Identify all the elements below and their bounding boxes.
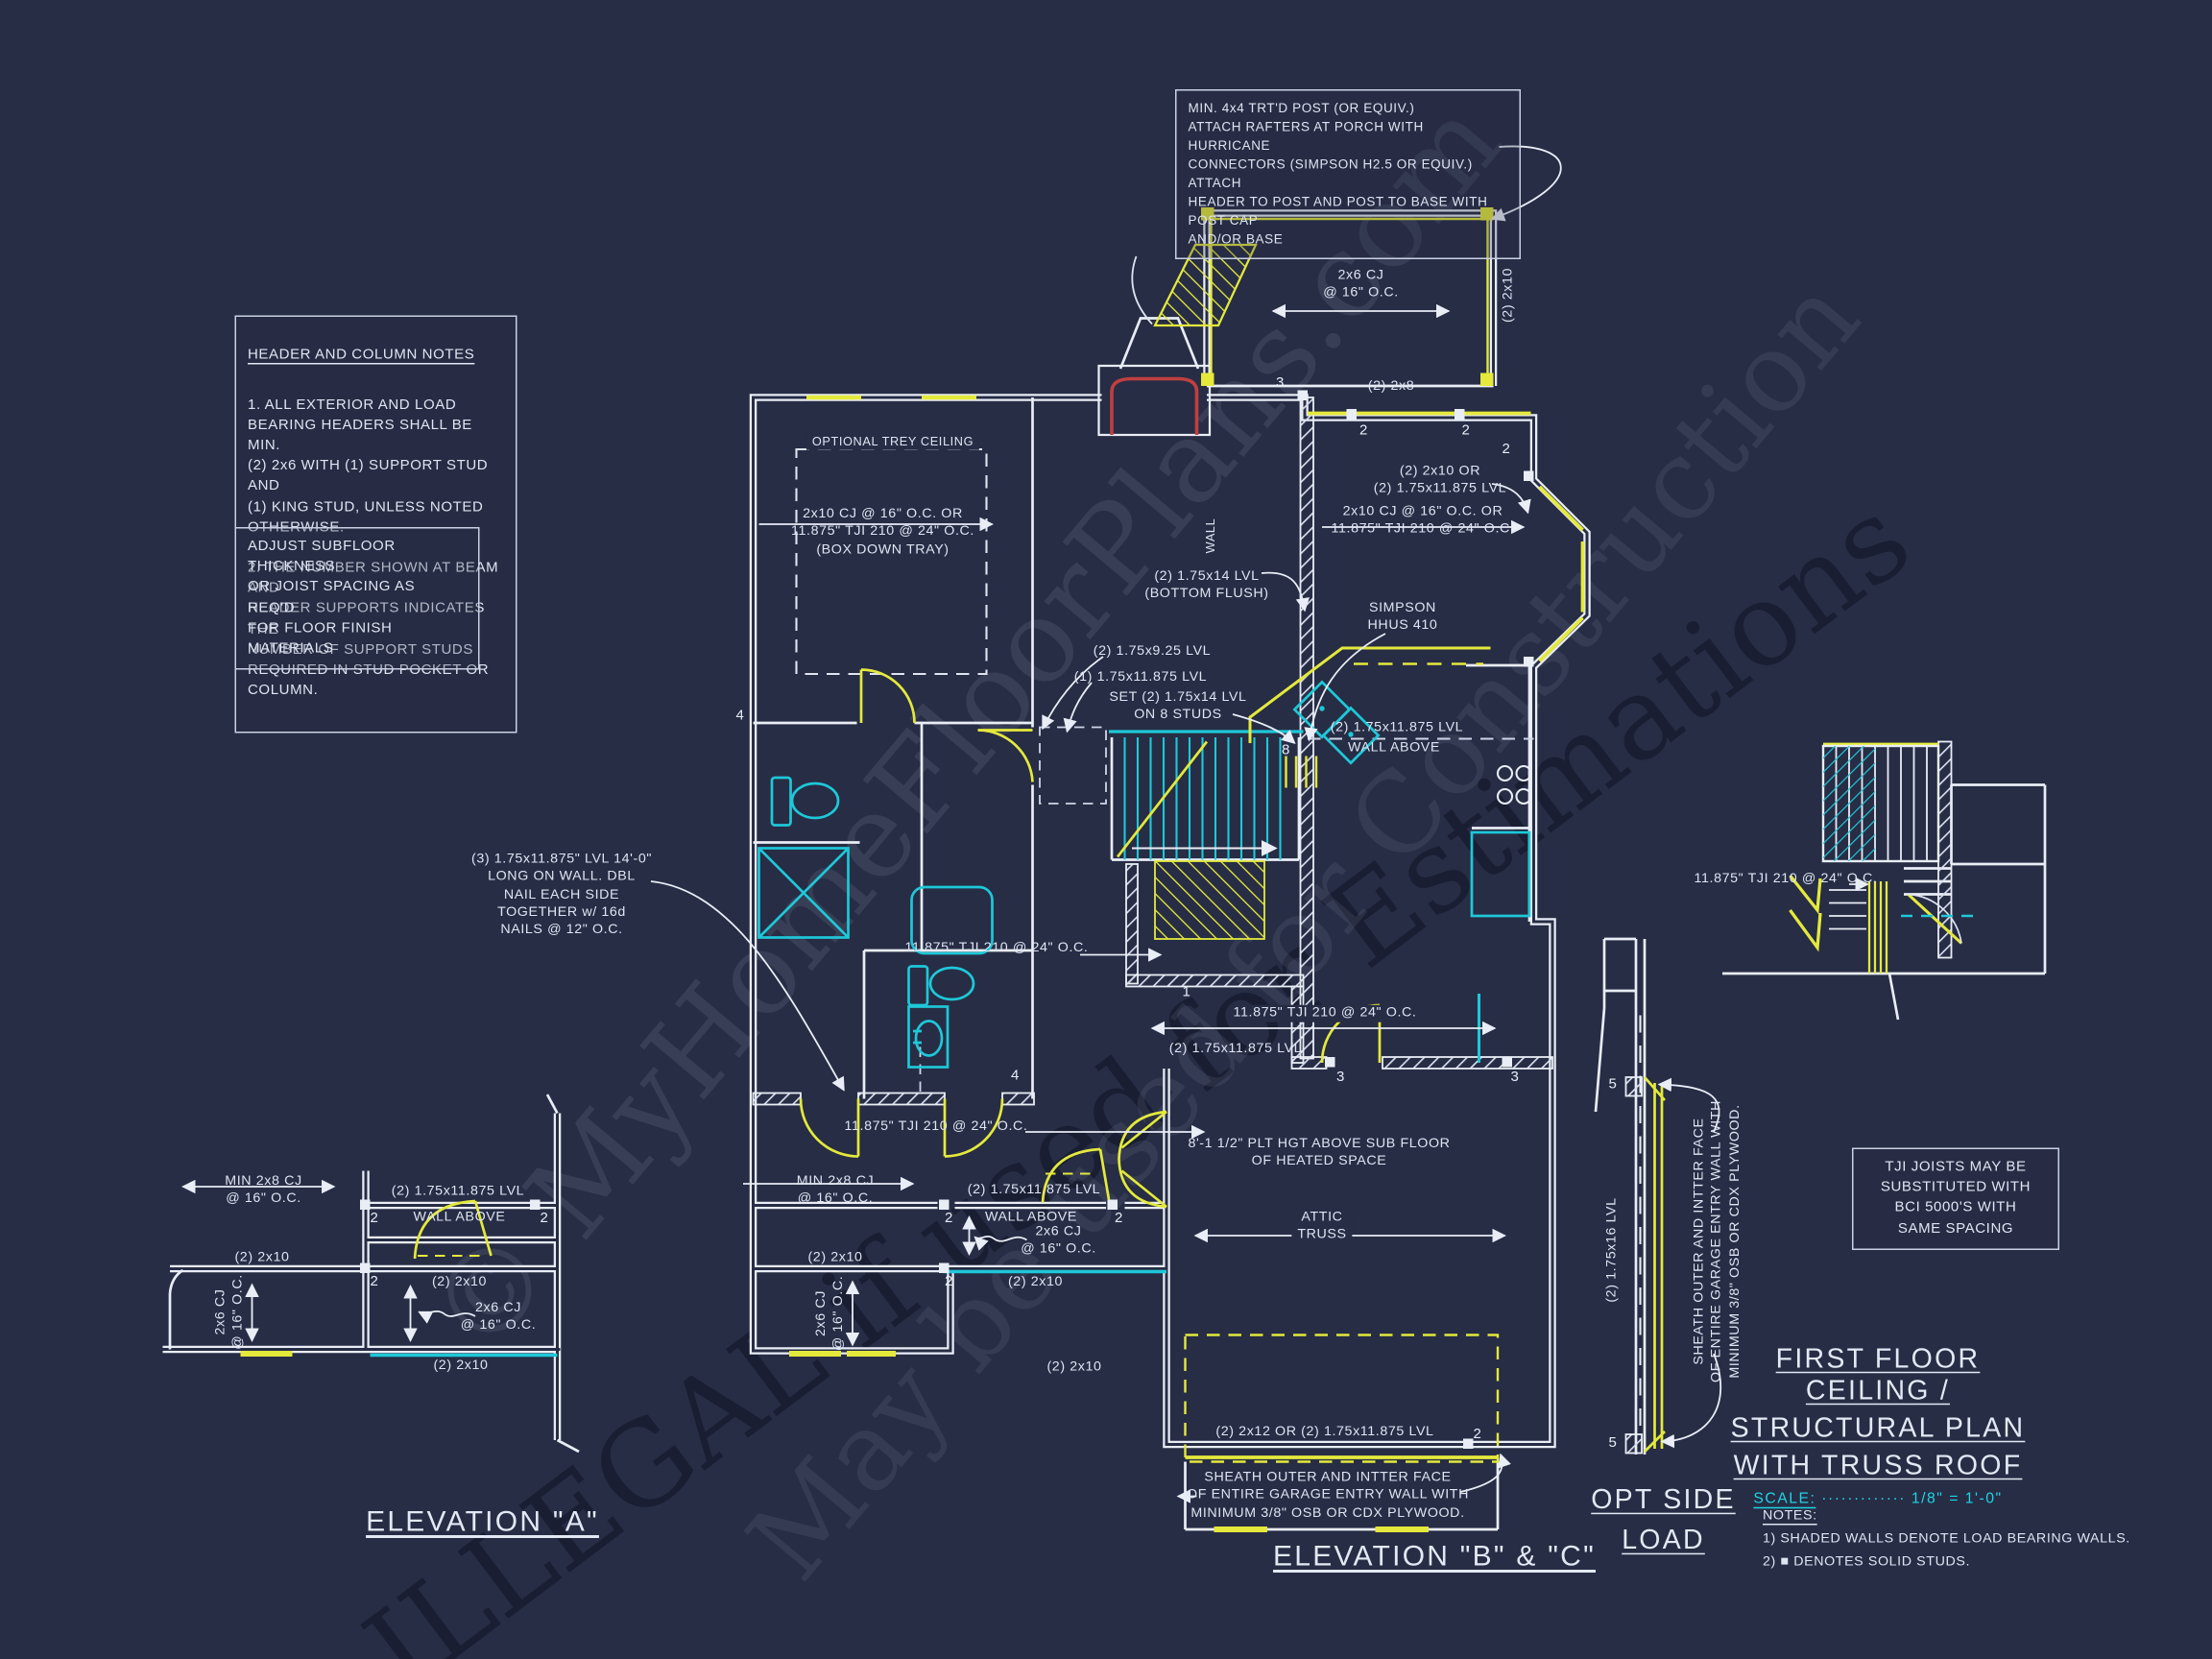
attic-truss-label: ATTIC TRUSS [1291,1209,1352,1244]
lvl14-flush-label: (2) 1.75x14 LVL (BOTTOM FLUSH) [1144,568,1268,604]
header-notes-title: HEADER AND COLUMN NOTES [248,346,504,366]
b2x10-a1: (2) 2x10 [234,1250,289,1268]
b2x10-a2: (2) 2x10 [432,1274,487,1292]
stud-count: 4 [1011,1067,1020,1086]
garage-header-label: (2) 2x12 OR (2) 1.75x11.875 LVL [1215,1424,1433,1442]
stud-count: 2 [371,1209,379,1228]
min2x8-bc-label: MIN 2x8 CJ @ 16" O.C. [797,1173,874,1209]
sheet-note-1: 1) SHADED WALLS DENOTE LOAD BEARING WALL… [1763,1528,2130,1551]
stud-count: 4 [736,707,745,726]
b2x10-bc-bottom: (2) 2x10 [1046,1359,1101,1378]
tji-label-a: 11.875" TJI 210 @ 24" O.C. [905,940,1089,958]
stud-count: 2 [945,1209,953,1228]
stud-count: 8 [1282,741,1290,760]
title-block: FIRST FLOOR CEILING / STRUCTURAL PLAN WI… [1711,1344,2045,1507]
stud-count: 2 [1503,440,1511,459]
tji-note-text: TJI JOISTS MAY BE SUBSTITUTED WITH BCI 5… [1881,1160,2031,1237]
stud-count: 2 [945,1272,953,1291]
stud-count: 3 [1336,1068,1345,1087]
lvl-wall-note: (3) 1.75x11.875" LVL 14'-0" LONG ON WALL… [471,852,652,941]
right-lvl-label: (2) 2x10 OR (2) 1.75x11.875 LVL [1374,463,1506,498]
tji-label-b: 11.875" TJI 210 @ 24" O.C. [845,1118,1028,1137]
header-column-notes-box: HEADER AND COLUMN NOTES 1. ALL EXTERIOR … [235,316,517,733]
set-lvl14-label: SET (2) 1.75x14 LVL ON 8 STUDS [1109,689,1246,725]
post-note-box: MIN. 4x4 TRT'D POST (OR EQUIV.) ATTACH R… [1175,89,1521,260]
simpson-label: SIMPSON HHUS 410 [1368,600,1438,636]
wall-above-a-label: WALL ABOVE [413,1210,505,1228]
trey-ceiling-title: OPTIONAL TREY CEILING [806,434,979,450]
lvl11875-two-label: (2) 1.75x11.875 LVL [1331,720,1463,738]
blueprint-sheet: © MyHomeFloorPlans.com ILLEGAL if used f… [0,0,2212,1659]
tji-label-c: 11.875" TJI 210 @ 24" O.C. [1229,1005,1421,1023]
subfloor-note-box: ADJUST SUBFLOOR THICKNESS OR JOIST SPACI… [235,527,480,670]
porch-2x10-label: (2) 2x10 [1501,268,1519,323]
header-2x8-label: (2) 2x8 [1368,378,1415,397]
stud-count: 1 [1183,983,1191,1002]
sheet-notes-title: NOTES: [1763,1505,2130,1528]
stud-count: 5 [1609,1433,1618,1453]
cj2x6-a-label: 2x6 CJ @ 16" O.C. [461,1300,537,1335]
sheath-note-bottom: SHEATH OUTER AND INTTER FACE OF ENTIRE G… [1187,1470,1469,1524]
right-cj-label: 2x10 CJ @ 16" O.C. OR 11.875" TJI 210 @ … [1332,503,1515,539]
stud-count: 2 [1462,421,1471,441]
lvl11875-a-label: (2) 1.75x11.875 LVL [392,1184,524,1202]
stud-count: 2 [1359,421,1368,441]
cj2x6-bc-label: 2x6 CJ @ 16" O.C. [1021,1223,1096,1259]
stud-count: 2 [1474,1425,1482,1444]
min2x8-a-label: MIN 2x8 CJ @ 16" O.C. [225,1173,301,1209]
wall-above-kitchen-label: WALL ABOVE [1348,740,1440,758]
lvl11875-one-label: (1) 1.75x11.875 LVL [1074,669,1207,687]
sheet-title-line1: FIRST FLOOR CEILING / [1711,1344,2045,1407]
elevation-a-title: ELEVATION "A" [366,1503,599,1541]
sheet-title-line3: WITH TRUSS ROOF [1711,1451,2045,1482]
subfloor-note-text: ADJUST SUBFLOOR THICKNESS OR JOIST SPACI… [248,539,415,657]
b2x10-bc-right: (2) 2x10 [1008,1274,1063,1292]
cj2x6-a-rot: 2x6 CJ @ 16" O.C. [212,1274,248,1350]
stud-count: 3 [1511,1068,1520,1087]
lvl11875-bc-label: (2) 1.75x11.875 LVL [968,1182,1100,1200]
opt-lvl16-label: (2) 1.75x16 LVL [1604,1197,1623,1302]
trey-joist-label: 2x10 CJ @ 16" O.C. OR 11.875" TJI 210 @ … [791,506,974,560]
sheet-note-2: 2) ■ DENOTES SOLID STUDS. [1763,1551,2130,1575]
cj2x6-bc-rot: 2x6 CJ @ 16" O.C. [813,1276,849,1352]
stud-count: 2 [541,1209,549,1228]
plate-height-label: 8'-1 1/2" PLT HGT ABOVE SUB FLOOR OF HEA… [1188,1136,1450,1171]
sheet-title-line2: STRUCTURAL PLAN [1711,1413,2045,1445]
lvl925-label: (2) 1.75x9.25 LVL [1094,643,1211,661]
tji-note-box: TJI JOISTS MAY BE SUBSTITUTED WITH BCI 5… [1852,1148,2059,1250]
lvl11875-garage-label: (2) 1.75x11.875 LVL [1169,1041,1302,1059]
b2x10-bc-left: (2) 2x10 [807,1250,862,1268]
tji-label-d: 11.875" TJI 210 @ 24" O.C. [1695,871,1878,889]
wall-vertical-label: WALL [1203,518,1219,554]
b2x10-a3: (2) 2x10 [433,1358,488,1376]
stud-count: 5 [1609,1075,1618,1094]
porch-cj-label: 2x6 CJ @ 16" O.C. [1323,267,1399,302]
stud-count: 2 [371,1272,379,1291]
elevation-bc-title: ELEVATION "B" & "C" [1273,1538,1596,1575]
post-note-text: MIN. 4x4 TRT'D POST (OR EQUIV.) ATTACH R… [1189,101,1488,247]
stud-count: 2 [1115,1209,1123,1228]
sheet-notes: NOTES: 1) SHADED WALLS DENOTE LOAD BEARI… [1763,1505,2130,1575]
stud-count: 3 [1276,373,1285,393]
